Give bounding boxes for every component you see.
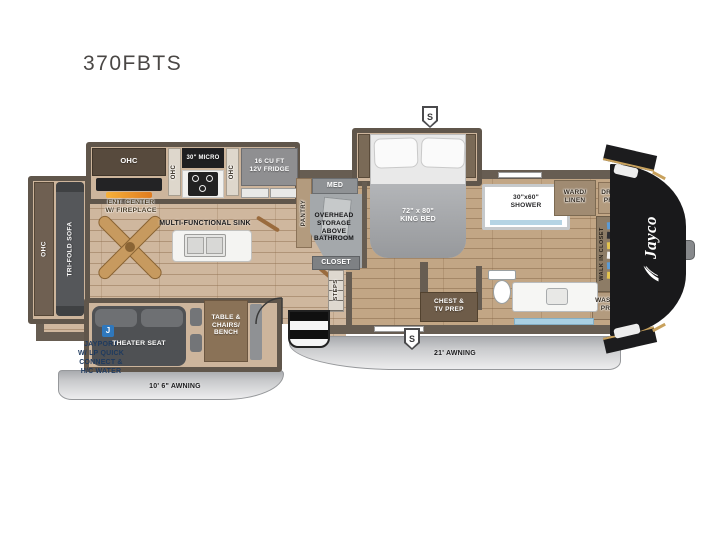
closet-label: CLOSET [312, 259, 360, 267]
theater-seat-back [95, 309, 137, 327]
stove-burner [199, 185, 206, 192]
bed-pillow [373, 137, 418, 169]
vanity-sink [546, 288, 568, 305]
shower-label: 30"x60" SHOWER [482, 194, 570, 210]
toilet-bowl [493, 280, 511, 304]
toilet-tank [488, 270, 516, 280]
slide-marker-badge: S [422, 106, 438, 128]
king-bed-label: 72" x 80" KING BED [370, 208, 466, 225]
slide-marker-label: S [406, 330, 418, 348]
nightstand [358, 134, 370, 178]
page-title: 370FBTS [83, 52, 182, 76]
theater-seat-back [141, 309, 183, 327]
island-sink-basin [187, 237, 204, 254]
refrigerator-label: 16 CU FT 12V FRIDGE [241, 158, 298, 173]
wall-steps-side [346, 272, 352, 328]
interior-steps-label: STEPS [333, 279, 339, 300]
jayport-icon: J [102, 325, 114, 337]
med-cabinet-label: MED [312, 182, 358, 190]
dinette-table-label: TABLE & CHAIRS/ BENCH [204, 314, 248, 337]
fridge-drawer [270, 188, 298, 198]
tri-fold-sofa-label: TRI-FOLD SOFA [67, 221, 74, 276]
awning-right-label: 21' AWNING [410, 350, 500, 358]
stove-burner [206, 175, 213, 182]
island-sink-basin [206, 237, 223, 254]
entertainment-ohc-label: OHC [92, 157, 166, 166]
dinette-chair [190, 308, 202, 326]
tv [96, 178, 162, 191]
wall-chest-side [420, 262, 428, 292]
entry-steps [288, 310, 330, 348]
eagle-icon [641, 264, 661, 284]
multi-sink-label: MULTI-FUNCTIONAL SINK [145, 220, 265, 228]
vanity-window [514, 318, 594, 325]
ohc-strip-right-label: OHC [229, 165, 235, 180]
floorplan-canvas: 370FBTS 10' 6" AWNING 21' AWNING OHC OHC… [0, 0, 720, 540]
stove-burner [192, 175, 199, 182]
window-top-front [498, 172, 542, 178]
ohc-strip-left-label: OHC [171, 165, 177, 180]
sofa-arm [56, 182, 84, 192]
microwave-label: 30" MICRO [182, 155, 224, 162]
theater-seat-label: THEATER SEAT [92, 340, 186, 348]
ent-center-label: ENT. CENTER W/ FIREPLACE [88, 199, 174, 215]
chest-tv-prep-label: CHEST & TV PREP [420, 298, 478, 313]
shower-glass [490, 220, 562, 225]
slide-marker-label: S [424, 108, 436, 126]
brand-logo-group: Jayco [629, 195, 673, 305]
sofa-arm [56, 306, 84, 316]
walk-in-closet-label: WALK IN CLOSET [599, 227, 605, 280]
overhead-storage-label: OVERHEAD STORAGE ABOVE BATHROOM [302, 212, 366, 243]
brand-logo-text: Jayco [641, 216, 661, 259]
dinette-chair [190, 334, 202, 352]
sofa-ohc-label: OHC [41, 241, 48, 257]
bed-pillow [420, 137, 465, 169]
awning-left-label: 10' 6" AWNING [125, 383, 225, 391]
fireplace [106, 192, 152, 198]
fridge-drawer [241, 188, 269, 198]
ceiling-fan-hub [125, 242, 135, 252]
entry-door-swing [250, 292, 290, 332]
